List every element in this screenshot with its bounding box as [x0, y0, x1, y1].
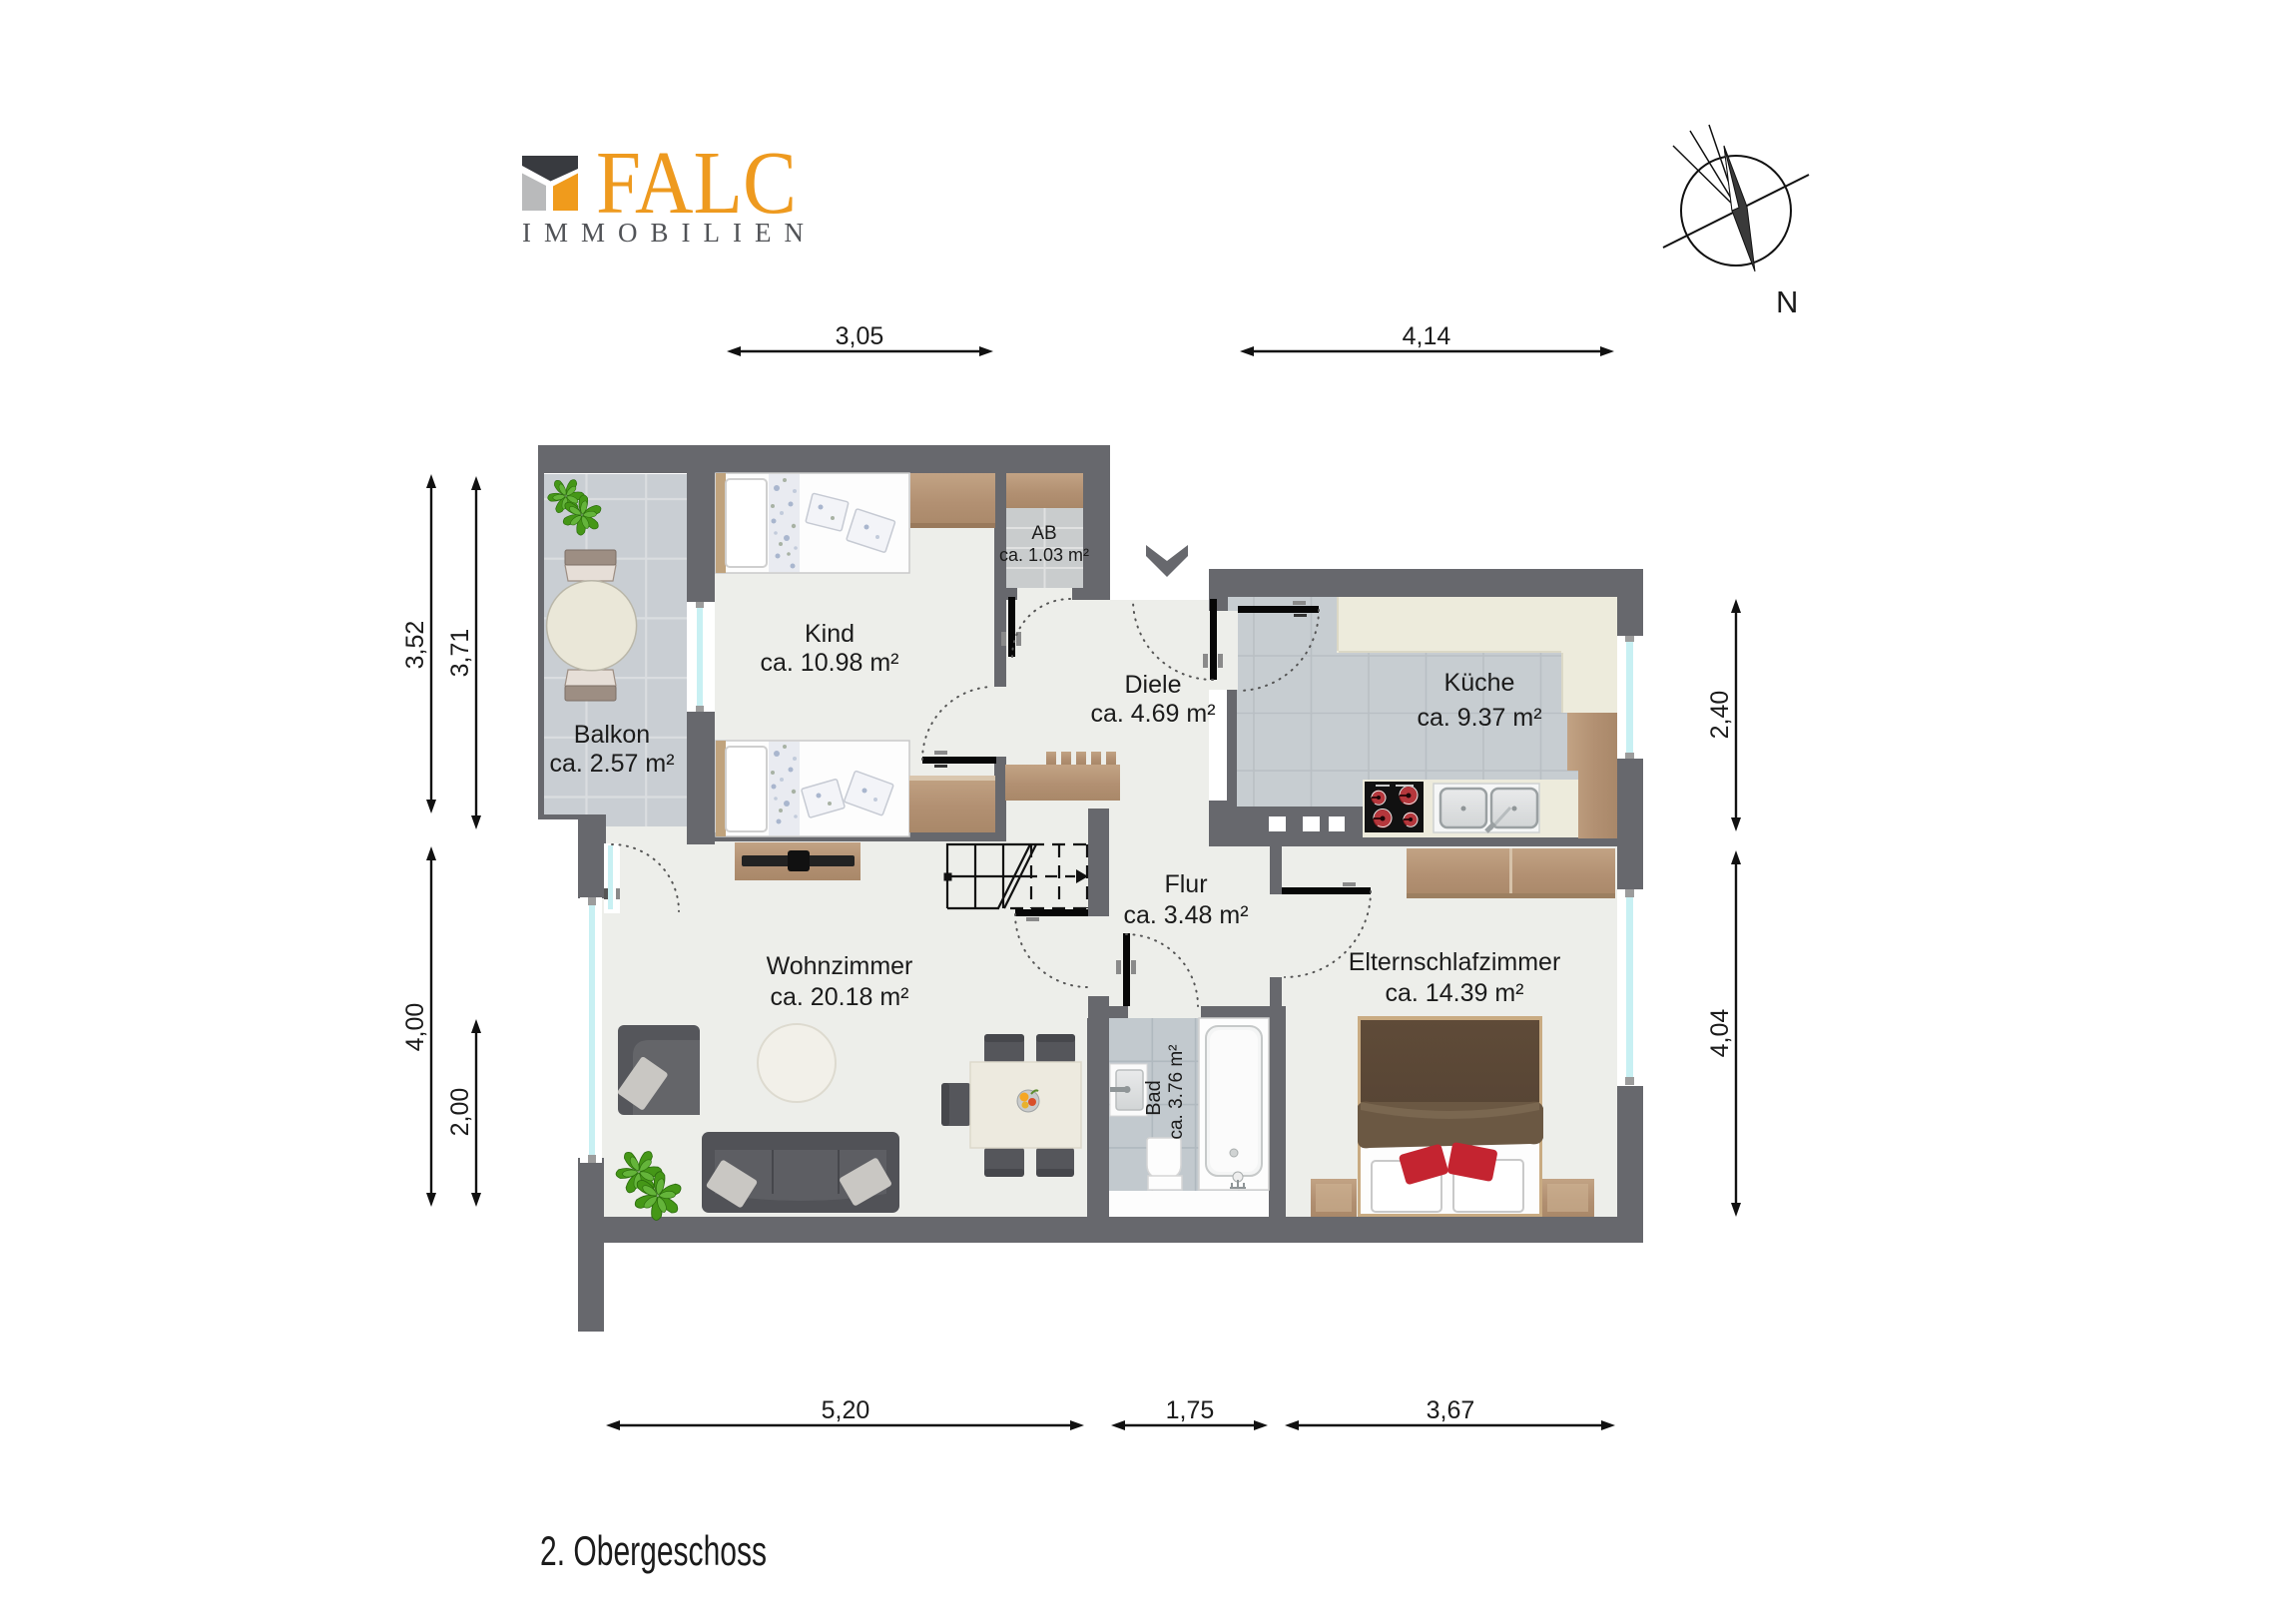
svg-text:Diele: Diele [1125, 671, 1182, 699]
svg-text:ca. 9.37 m²: ca. 9.37 m² [1417, 704, 1541, 732]
svg-text:2. Obergeschoss: 2. Obergeschoss [540, 1527, 767, 1574]
svg-text:1,75: 1,75 [1166, 1396, 1215, 1424]
svg-text:5,20: 5,20 [822, 1396, 870, 1424]
svg-text:IMMOBILIEN: IMMOBILIEN [522, 218, 817, 248]
svg-text:3,05: 3,05 [836, 322, 884, 350]
svg-text:Elternschlafzimmer: Elternschlafzimmer [1349, 948, 1561, 976]
svg-text:Flur: Flur [1164, 870, 1207, 898]
svg-text:N: N [1776, 284, 1798, 319]
svg-text:4,14: 4,14 [1403, 322, 1451, 350]
svg-text:3,71: 3,71 [446, 629, 474, 678]
svg-text:4,00: 4,00 [401, 1003, 429, 1052]
svg-text:ca. 20.18 m²: ca. 20.18 m² [771, 983, 909, 1011]
svg-text:AB: AB [1031, 523, 1056, 544]
svg-text:4,04: 4,04 [1706, 1009, 1734, 1058]
svg-text:ca. 1.03 m²: ca. 1.03 m² [999, 545, 1089, 565]
svg-text:Wohnzimmer: Wohnzimmer [767, 952, 913, 980]
svg-text:3,67: 3,67 [1427, 1396, 1475, 1424]
svg-text:ca. 2.57 m²: ca. 2.57 m² [549, 750, 674, 778]
svg-text:Balkon: Balkon [574, 721, 650, 749]
svg-text:Bad: Bad [1143, 1080, 1165, 1116]
svg-text:ca. 3.48 m²: ca. 3.48 m² [1123, 901, 1248, 929]
svg-text:2,40: 2,40 [1706, 691, 1734, 740]
svg-text:ca. 3.76 m²: ca. 3.76 m² [1166, 1044, 1187, 1139]
svg-text:ca. 10.98 m²: ca. 10.98 m² [761, 649, 899, 677]
svg-text:ca. 14.39 m²: ca. 14.39 m² [1386, 979, 1524, 1007]
svg-text:3,52: 3,52 [401, 621, 429, 670]
svg-text:Küche: Küche [1444, 669, 1515, 697]
svg-text:Kind: Kind [805, 620, 855, 648]
svg-text:ca. 4.69 m²: ca. 4.69 m² [1090, 700, 1215, 728]
svg-text:2,00: 2,00 [446, 1088, 474, 1137]
